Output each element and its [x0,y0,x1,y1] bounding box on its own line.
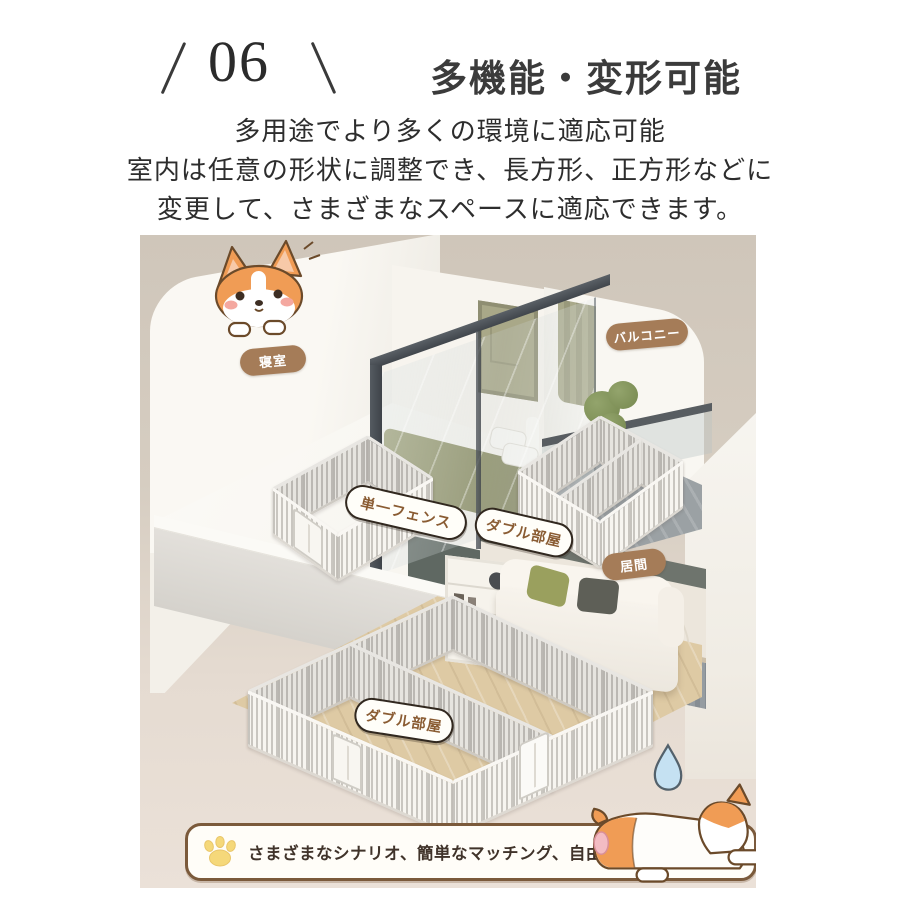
slash-left-icon [161,42,186,94]
fence-gate [332,733,362,792]
isometric-room-illustration: 寝室 バルコニー 単一フェンス ダブル部屋 居間 ダブル部屋 さまざまなシナリオ… [140,235,756,888]
description-line: 室内は任意の形状に調整でき、長方形、正方形などに [0,151,900,190]
description-line: 多用途でより多くの環境に適応可能 [0,112,900,151]
slash-right-icon [311,42,336,94]
fence-door [519,731,549,800]
sofa-pillow-gray [576,577,619,615]
corgi-peeking-icon [196,237,324,341]
page-title: 多機能・変形可能 [430,48,742,102]
description-line: 変更して、さまざまなスペースに適応できます。 [0,190,900,229]
plant [608,381,638,409]
description: 多用途でより多くの環境に適応可能 室内は任意の形状に調整でき、長方形、正方形など… [0,112,900,229]
sofa-armrest [658,585,684,648]
paw-icon [202,835,238,869]
corgi-sleeping-icon [578,771,756,888]
section-number: 06 [208,28,270,95]
